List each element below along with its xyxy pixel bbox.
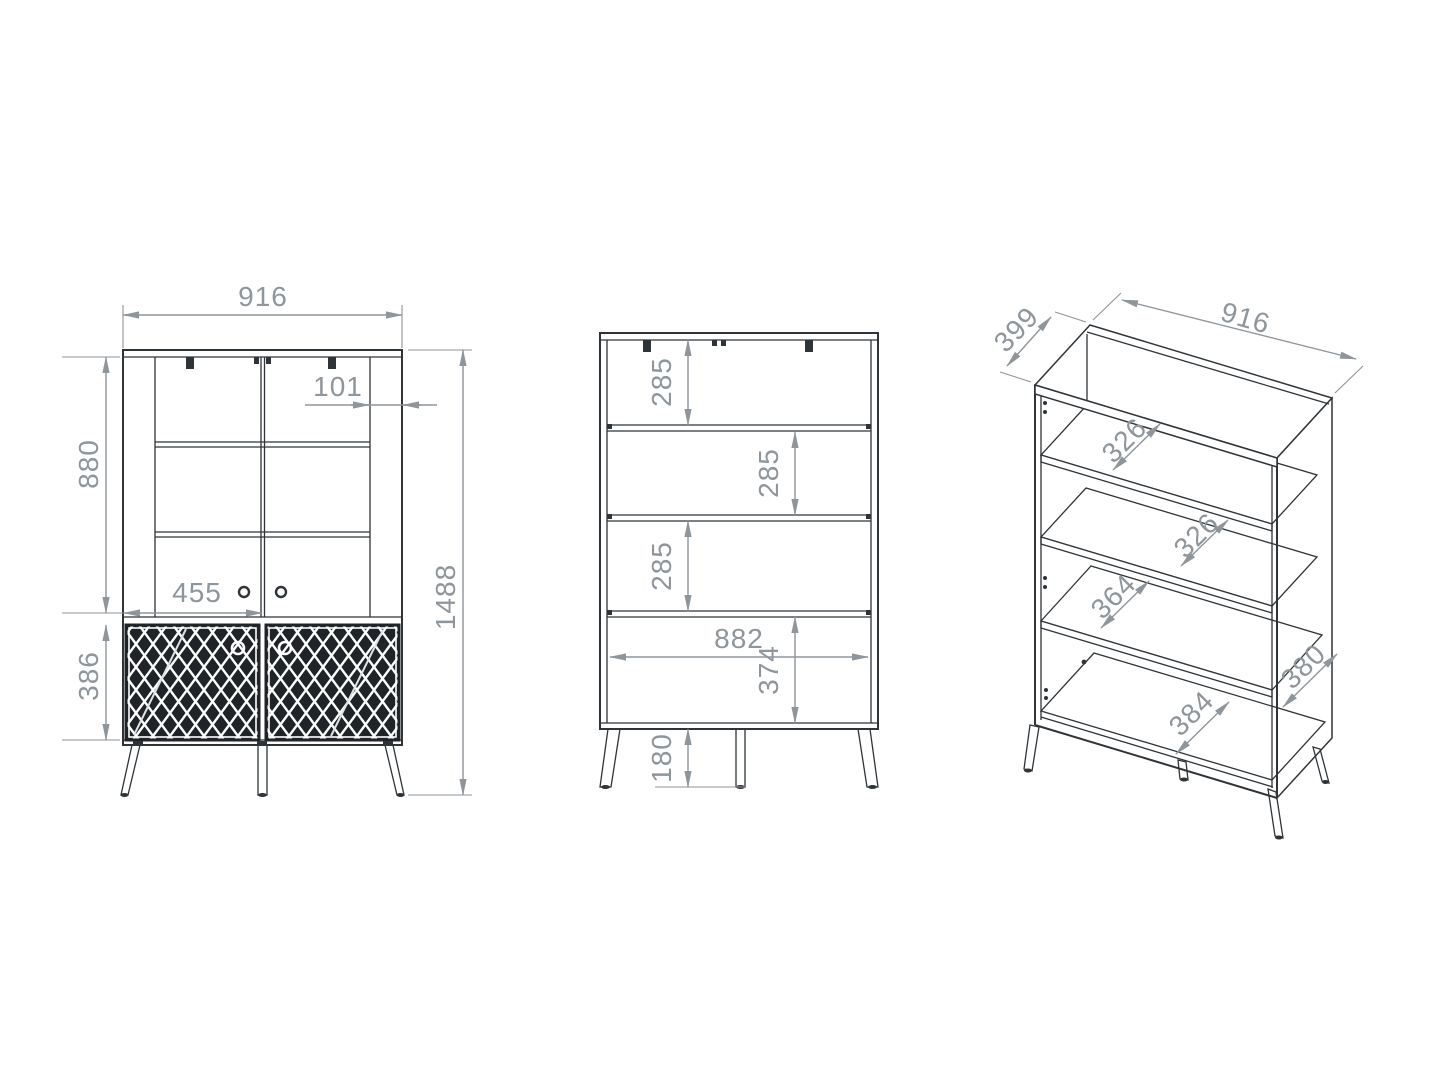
leg-foot (121, 793, 129, 797)
dim-shelf-spacing-bottom: 285 (646, 541, 677, 591)
dim-base-interior-height: 374 (753, 645, 784, 695)
catch-mark (721, 340, 726, 346)
dim-iso-width: 916 (1217, 296, 1273, 340)
catch-mark (712, 340, 717, 346)
dim-shelf-spacing-top: 285 (646, 357, 677, 407)
dim-depth: 399 (988, 301, 1045, 358)
dim-door-width: 455 (172, 577, 222, 608)
catch-mark (254, 357, 259, 364)
dim-side-panel-width: 101 (313, 371, 363, 402)
leg-foot (1024, 769, 1032, 773)
pin-hole (1044, 696, 1048, 700)
open-carcass-outline (600, 333, 878, 729)
pin-hole (1043, 576, 1047, 580)
hinge-mark (643, 340, 651, 352)
pin-hole (1043, 410, 1047, 414)
pin-hole (1043, 401, 1047, 405)
front-view: 916 1488 880 386 455 101 (62, 281, 472, 797)
pin-hole (1082, 660, 1087, 665)
dim-base-height: 386 (73, 651, 104, 701)
leg-foot (397, 793, 405, 797)
shelf-support-mark (866, 514, 871, 519)
leg-foot (868, 785, 877, 789)
hinge-mark (328, 357, 336, 369)
shelf-support-mark (607, 610, 612, 615)
glass-door-knob-left (239, 587, 249, 597)
dim-total-height: 1488 (430, 564, 461, 630)
dim-leg-height: 180 (646, 733, 677, 783)
leg-foot (601, 785, 610, 789)
shelf-support-mark (866, 610, 871, 615)
front-leg-center (258, 745, 267, 795)
furniture-dimension-drawing: 916 1488 880 386 455 101 (0, 0, 1454, 1090)
dim-shelf-spacing-middle: 285 (753, 448, 784, 498)
dim-width: 916 (238, 281, 288, 312)
open-view: 285 285 285 882 374 180 (600, 333, 878, 789)
hinge-mark (186, 357, 194, 369)
leg-foot (1322, 780, 1329, 784)
pin-hole (1043, 585, 1047, 589)
open-leg-left (600, 729, 620, 787)
iso-view: 399 916 326 326 364 380 384 (988, 293, 1363, 840)
dim-vitrine-height: 880 (73, 439, 104, 489)
leg-foot (1275, 836, 1283, 840)
leg-foot (258, 793, 267, 797)
glass-door-knob-right (276, 587, 286, 597)
pin-hole (1044, 688, 1048, 692)
front-leg-right (385, 745, 404, 795)
shelf-support-mark (607, 424, 612, 429)
catch-mark (266, 357, 271, 364)
open-leg-right (858, 729, 878, 787)
technical-drawing-page: 916 1488 880 386 455 101 (0, 0, 1454, 1090)
shelf-support-mark (866, 424, 871, 429)
hinge-mark (805, 340, 813, 352)
shelf-support-mark (607, 514, 612, 519)
leg-foot (1180, 778, 1188, 782)
open-leg-center (736, 729, 745, 787)
front-leg-left (121, 745, 140, 795)
iso-leg-front-left (1024, 725, 1039, 771)
